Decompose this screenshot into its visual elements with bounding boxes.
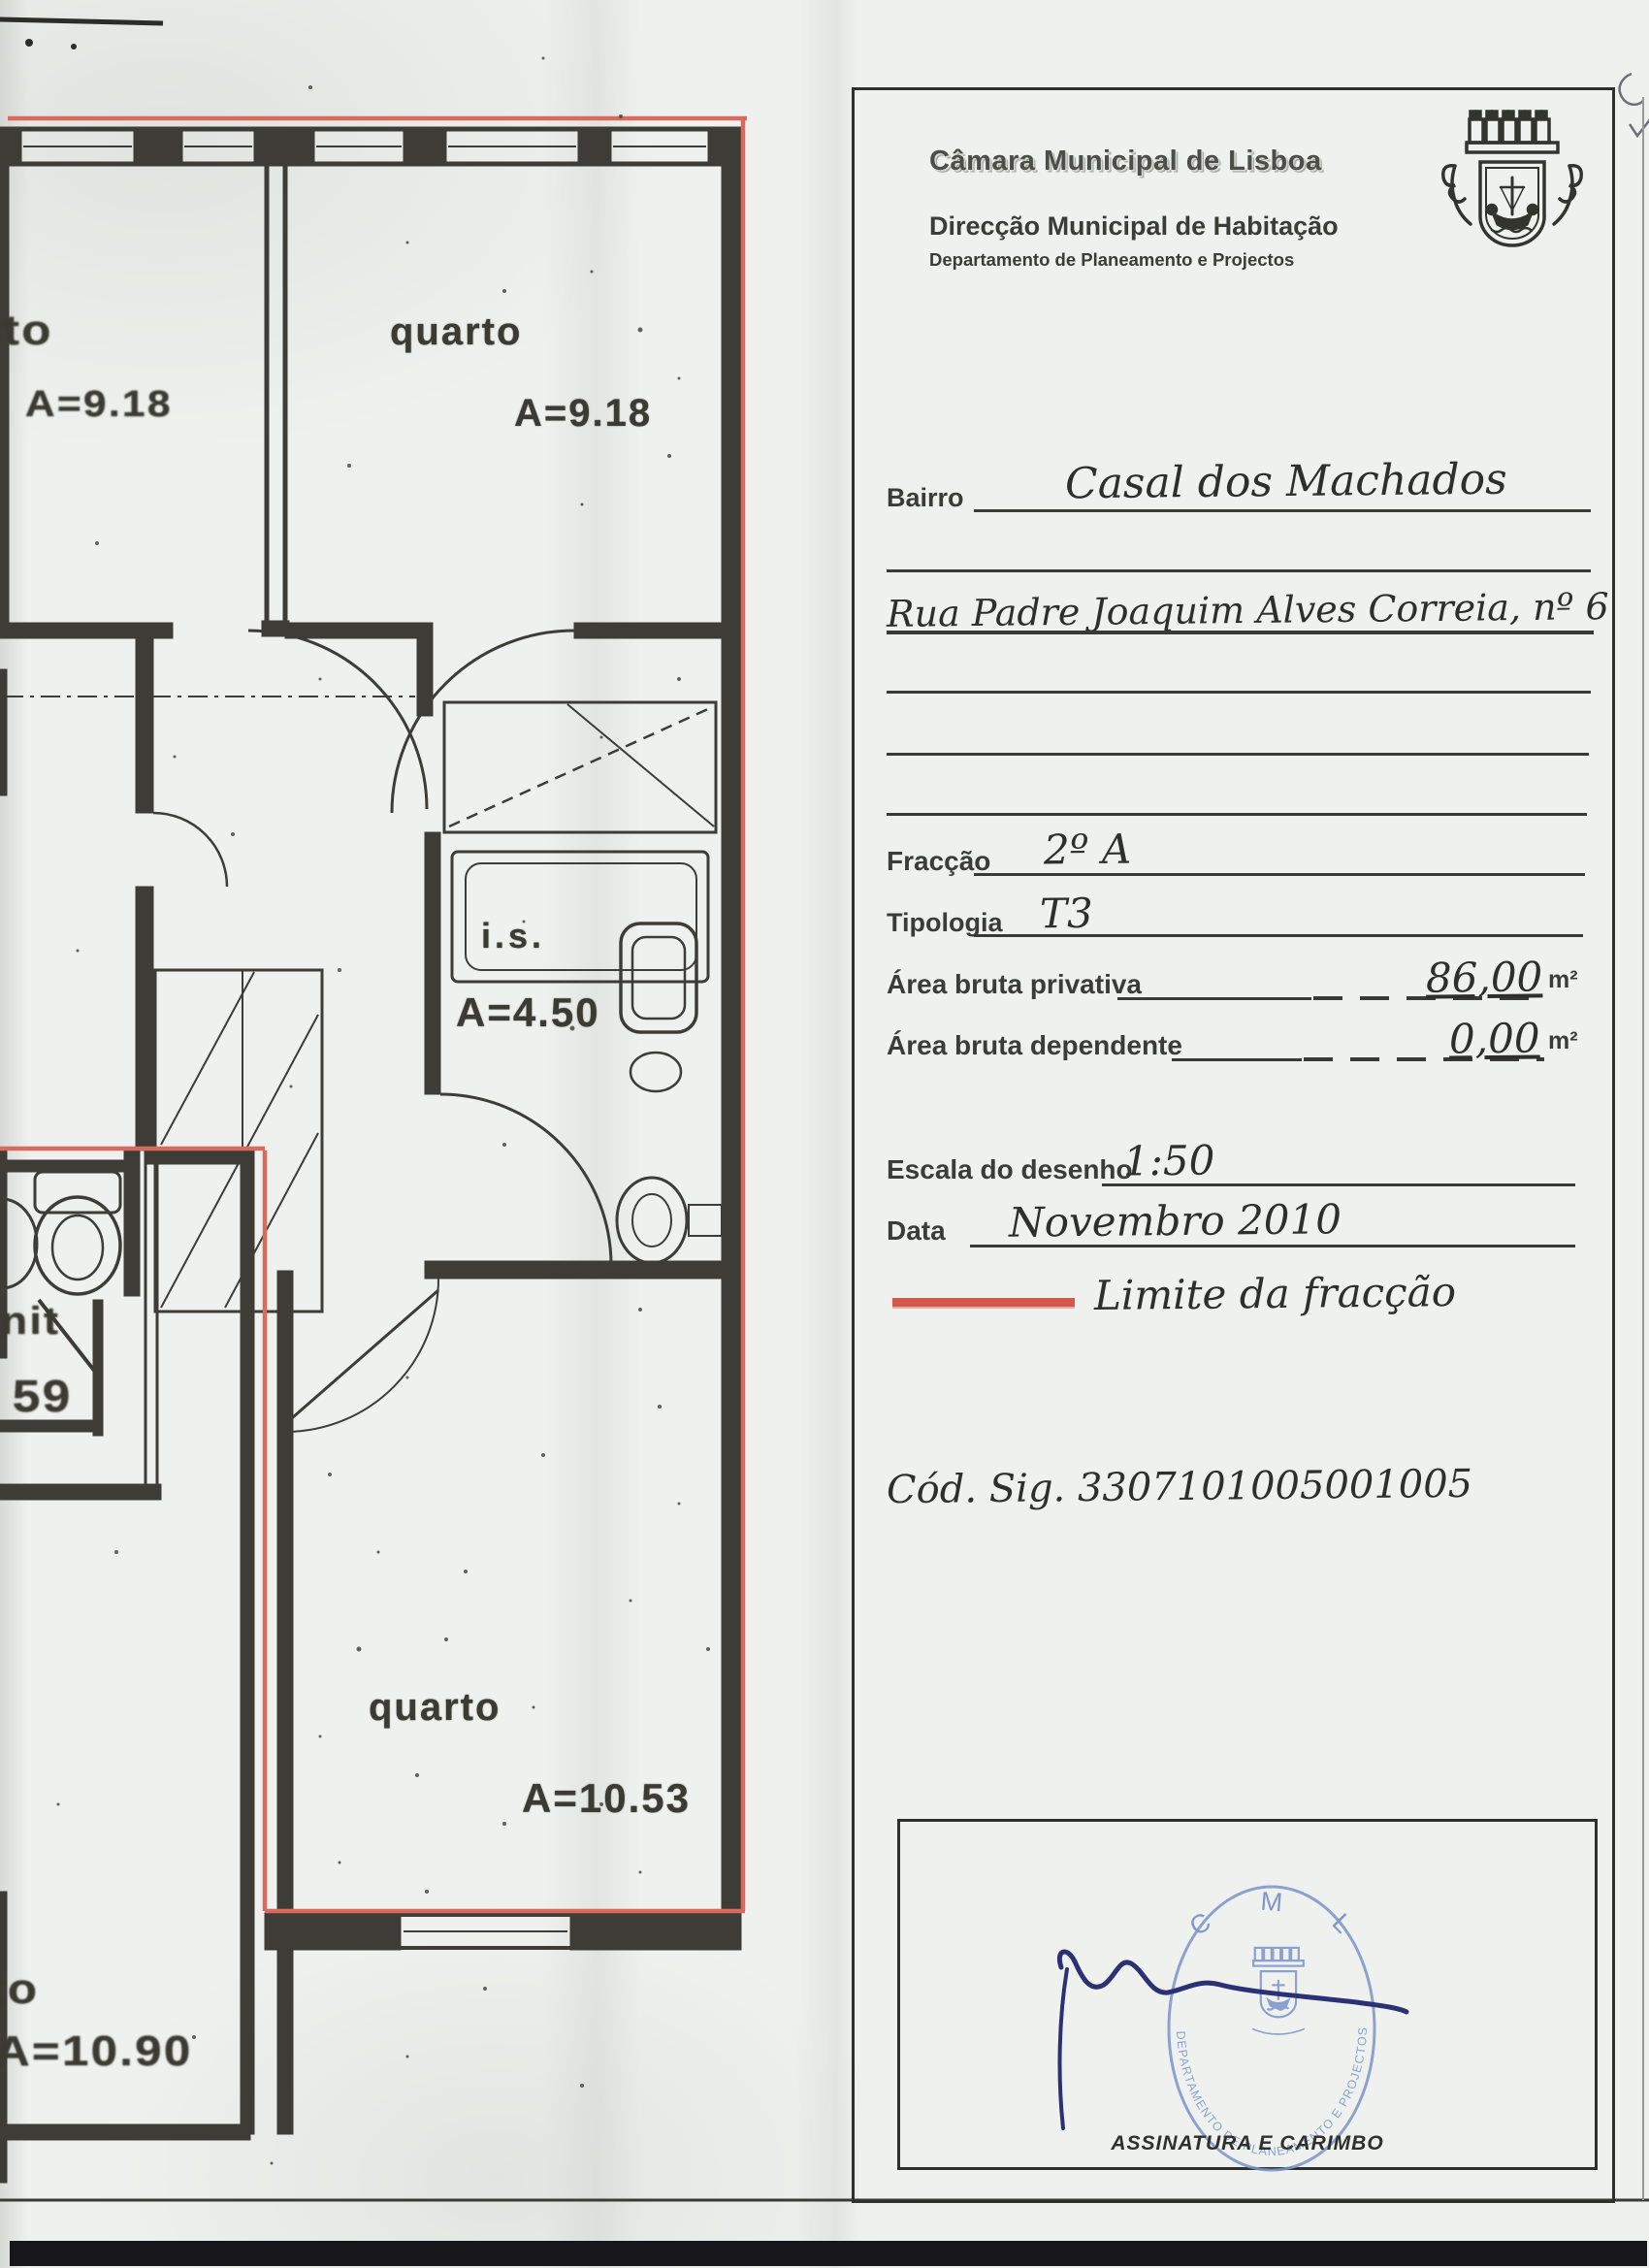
form-line	[974, 934, 1583, 937]
bairro-value: Casal dos Machados	[1065, 455, 1507, 509]
form-line	[970, 1245, 1575, 1247]
unit-m2: m²	[1548, 1027, 1578, 1055]
room-area-label: A=9.18	[25, 384, 173, 426]
room-label-partial: nit	[1, 1300, 60, 1344]
handwritten-signature	[1059, 1952, 1406, 2128]
cod-sig-value: Cód. Sig. 3307101005001005	[887, 1462, 1473, 1512]
room-area-label: A=10.53	[522, 1775, 691, 1822]
form-line	[887, 753, 1589, 756]
area-bruta-dependente-value: 0,00	[1449, 1015, 1540, 1063]
area-bruta-privativa-value: 86,00	[1426, 953, 1543, 1001]
room-area-label: A=4.50	[456, 989, 600, 1036]
room-area-label: A=10.90	[0, 2027, 192, 2076]
room-label-quarto-partial: to	[0, 1965, 39, 2014]
bairro-label: Bairro	[887, 483, 964, 513]
svg-text:C M L: C M L	[1184, 1887, 1373, 1954]
escala-value: 1:50	[1123, 1137, 1215, 1185]
form-line	[887, 631, 1594, 634]
form-line	[887, 569, 1591, 572]
escala-label: Escala do desenho	[887, 1154, 1133, 1185]
form-line	[887, 691, 1591, 694]
room-label-is: i.s.	[481, 916, 545, 956]
room-label-quarto: quarto	[390, 310, 522, 354]
unit-m2: m²	[1548, 966, 1578, 994]
round-stamp-and-signature: C M L DEPARTAMENTO DE PLANEAMENTO E PROJ…	[900, 1822, 1595, 2167]
fraction-limit-legend-swatch	[892, 1298, 1075, 1307]
room-label-quarto-partial: rto	[0, 307, 53, 355]
room-label-quarto: quarto	[369, 1686, 501, 1730]
form-line	[1102, 1183, 1575, 1186]
form-line	[1172, 1058, 1302, 1061]
data-label: Data	[887, 1215, 946, 1247]
title-block-panel: Câmara Municipal de Lisboa Direcção Muni…	[852, 87, 1615, 2203]
blue-stamp-icon: C M L DEPARTAMENTO DE PLANEAMENTO E PROJ…	[1169, 1887, 1374, 2170]
fraction-limit-legend-label: Limite da fracção	[1094, 1268, 1456, 1319]
scanned-floor-plan-document: rto A=9.18 quarto A=9.18 i.s. A=4.50 nit…	[0, 0, 1649, 2268]
form-line	[887, 813, 1587, 816]
address-value: Rua Padre Joaquim Alves Correia, nº 6	[887, 585, 1609, 635]
form-line	[974, 873, 1585, 876]
lisbon-coat-of-arms-icon	[1426, 102, 1599, 304]
room-area-label-partial: 59	[13, 1370, 73, 1422]
area-bruta-dependente-label: Área bruta dependente	[887, 1030, 1182, 1061]
organization-name: Câmara Municipal de Lisboa	[929, 146, 1322, 178]
tipologia-value: T3	[1040, 890, 1093, 938]
fraccao-value: 2º A	[1044, 826, 1132, 874]
form-line	[974, 509, 1591, 512]
signature-box: C M L DEPARTAMENTO DE PLANEAMENTO E PROJ…	[897, 1819, 1598, 2170]
room-area-label: A=9.18	[514, 392, 652, 436]
area-bruta-privativa-label: Área bruta privativa	[887, 969, 1142, 1000]
department-name: Departamento de Planeamento e Projectos	[929, 249, 1294, 271]
assinatura-e-carimbo-caption: ASSINATURA E CARIMBO	[900, 2132, 1595, 2155]
data-value: Novembro 2010	[1009, 1195, 1342, 1247]
direction-name: Direcção Municipal de Habitação	[929, 211, 1339, 242]
form-line	[1117, 997, 1311, 1000]
